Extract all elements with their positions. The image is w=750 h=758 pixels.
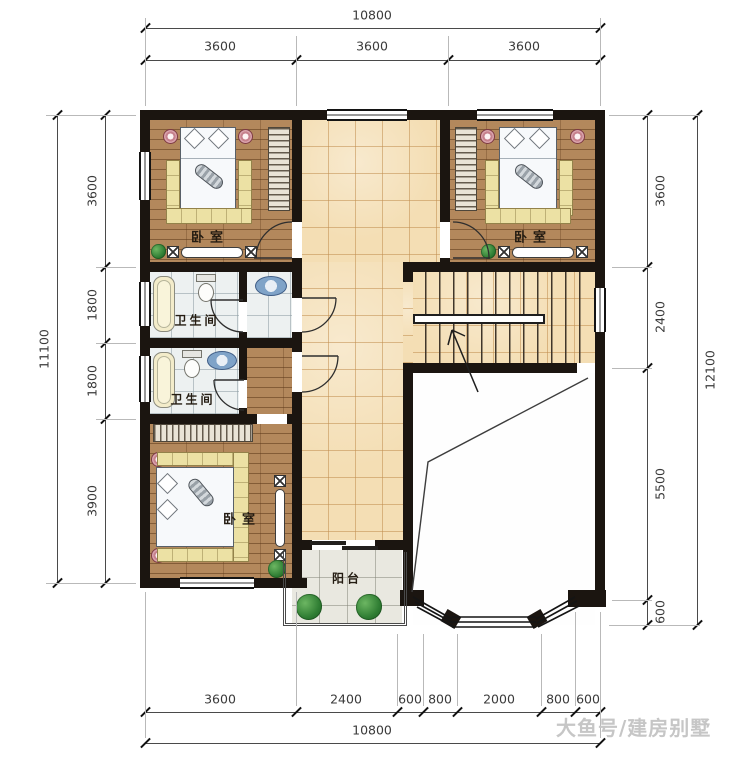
dimension-line bbox=[105, 115, 106, 583]
balcony-wall-stub bbox=[292, 540, 312, 550]
dimension-line bbox=[697, 115, 698, 625]
bath-partition bbox=[239, 332, 247, 338]
bathtub-basin bbox=[157, 356, 171, 404]
dim-label: 800 bbox=[428, 692, 452, 707]
sink bbox=[207, 351, 237, 370]
bath-partition bbox=[239, 348, 247, 380]
interior-wall bbox=[403, 262, 413, 282]
extension-line bbox=[96, 267, 136, 268]
dim-label: 12100 bbox=[703, 350, 718, 390]
dim-label: 11100 bbox=[37, 329, 52, 369]
hall-floor-lower bbox=[302, 262, 403, 540]
bed-sheet-line bbox=[181, 158, 235, 159]
bathtub-basin bbox=[157, 280, 171, 328]
blanket-roll-icon bbox=[192, 162, 225, 192]
dim-label: 600 bbox=[398, 692, 422, 707]
extension-line bbox=[612, 267, 652, 268]
interior-wall bbox=[140, 338, 302, 348]
cabinet-end bbox=[576, 246, 588, 258]
hall-stair-gap-floor bbox=[403, 282, 413, 365]
dim-label: 5500 bbox=[653, 468, 668, 500]
room-label-bathroom-lower: 卫生间 bbox=[170, 391, 215, 408]
extension-line bbox=[612, 368, 652, 369]
dim-label: 2400 bbox=[330, 692, 362, 707]
bed bbox=[499, 127, 557, 211]
bed-bench bbox=[157, 548, 237, 562]
hall-floor-upper bbox=[302, 120, 440, 262]
room-label-bedroom-bottom-left: 卧室 bbox=[223, 509, 261, 528]
extension-line bbox=[46, 583, 136, 584]
room-label-bathroom-upper: 卫生间 bbox=[174, 312, 219, 329]
sink bbox=[255, 276, 287, 296]
bath-partition bbox=[239, 272, 247, 302]
dim-label: 600 bbox=[653, 600, 668, 624]
window bbox=[139, 152, 151, 200]
balcony-wall-stub bbox=[375, 540, 403, 550]
cabinet-end bbox=[245, 246, 257, 258]
dim-label: 3600 bbox=[204, 692, 236, 707]
extension-line bbox=[600, 18, 601, 106]
bed-bench bbox=[233, 452, 249, 562]
extension-line bbox=[612, 600, 652, 601]
interior-wall bbox=[140, 262, 302, 272]
bed-bench bbox=[166, 208, 252, 224]
window bbox=[327, 109, 407, 121]
interior-wall bbox=[292, 120, 302, 222]
pillow-icon bbox=[184, 128, 205, 149]
floor-plan: 卧室 卧室 卧室 卫生间 卫生间 阳台 10800 3600 3600 3600… bbox=[0, 0, 750, 758]
extension-line bbox=[296, 592, 297, 706]
extension-line bbox=[145, 18, 146, 106]
toilet-tank bbox=[182, 350, 202, 358]
pillow-icon bbox=[504, 128, 525, 149]
dim-label: 3900 bbox=[85, 485, 100, 517]
pillow-icon bbox=[157, 473, 178, 494]
dimension-line bbox=[647, 115, 648, 625]
interior-wall bbox=[403, 262, 605, 272]
window bbox=[139, 356, 151, 402]
extension-line bbox=[96, 419, 136, 420]
room-label-bedroom-top-right: 卧室 bbox=[514, 227, 552, 246]
bed-sheet-line bbox=[500, 158, 556, 159]
dim-label: 600 bbox=[576, 692, 600, 707]
bath-partition bbox=[239, 408, 247, 414]
dresser bbox=[512, 247, 574, 258]
room-label-balcony: 阳台 bbox=[332, 570, 362, 587]
exterior-wall-right bbox=[595, 110, 605, 607]
extension-line bbox=[96, 343, 136, 344]
window bbox=[594, 288, 606, 332]
extension-line bbox=[296, 36, 297, 106]
extension-line bbox=[457, 634, 458, 706]
extension-line bbox=[46, 115, 136, 116]
extension-line bbox=[145, 592, 146, 738]
dim-label: 3600 bbox=[85, 175, 100, 207]
extension-line bbox=[448, 36, 449, 106]
interior-wall bbox=[140, 414, 257, 424]
dim-label: 3600 bbox=[508, 39, 540, 54]
toilet-bowl bbox=[198, 283, 214, 302]
watermark: 大鱼号/建房别墅 bbox=[556, 712, 711, 741]
dimension-line bbox=[145, 712, 600, 713]
dim-label: 2400 bbox=[653, 301, 668, 333]
interior-wall bbox=[287, 414, 302, 424]
sliding-door bbox=[310, 541, 346, 545]
window bbox=[180, 577, 254, 589]
extension-line bbox=[609, 625, 700, 626]
dim-label: 800 bbox=[546, 692, 570, 707]
cabinet-end bbox=[274, 475, 286, 487]
interior-wall bbox=[403, 363, 577, 373]
toilet-bowl bbox=[184, 359, 200, 378]
bed bbox=[180, 127, 236, 211]
void-room-floor bbox=[413, 373, 595, 625]
dim-label: 2000 bbox=[483, 692, 515, 707]
cabinet-end bbox=[498, 246, 510, 258]
toilet-tank bbox=[196, 274, 216, 282]
pillow-icon bbox=[529, 128, 550, 149]
bed-bench bbox=[485, 208, 571, 224]
window bbox=[139, 282, 151, 326]
wardrobe bbox=[153, 424, 253, 442]
extension-line bbox=[609, 115, 700, 116]
nightstand-lamp-icon bbox=[570, 129, 585, 144]
bed bbox=[156, 467, 234, 547]
bed-bench bbox=[157, 452, 237, 466]
extension-line bbox=[575, 612, 576, 706]
nightstand-lamp-icon bbox=[480, 129, 495, 144]
dim-label: 3600 bbox=[653, 175, 668, 207]
nightstand-lamp-icon bbox=[238, 129, 253, 144]
blanket-roll-icon bbox=[512, 162, 545, 192]
dim-label: 1800 bbox=[85, 365, 100, 397]
pillow-icon bbox=[208, 128, 229, 149]
stair-handrail bbox=[413, 314, 545, 324]
sliding-door bbox=[342, 546, 378, 550]
bay-window-post bbox=[568, 590, 606, 607]
extension-line bbox=[423, 634, 424, 706]
dim-label: 3600 bbox=[204, 39, 236, 54]
dim-label: 10800 bbox=[352, 8, 392, 23]
interior-wall bbox=[440, 120, 450, 222]
nightstand-lamp-icon bbox=[163, 129, 178, 144]
window bbox=[477, 109, 553, 121]
cabinet-end bbox=[167, 246, 179, 258]
dimension-line bbox=[145, 28, 600, 29]
room-label-bedroom-top-left: 卧室 bbox=[191, 227, 229, 246]
dimension-line bbox=[145, 60, 600, 61]
window-seat bbox=[275, 489, 285, 547]
vestibule-floor bbox=[247, 348, 292, 414]
dim-label: 10800 bbox=[352, 723, 392, 738]
dimension-line bbox=[145, 743, 600, 744]
bathtub bbox=[153, 276, 175, 332]
dim-label: 3600 bbox=[356, 39, 388, 54]
pillow-icon bbox=[157, 499, 178, 520]
wardrobe bbox=[268, 127, 290, 211]
blanket-roll-icon bbox=[186, 476, 217, 509]
dresser bbox=[181, 247, 243, 258]
extension-line bbox=[541, 634, 542, 706]
dim-label: 1800 bbox=[85, 289, 100, 321]
wardrobe bbox=[455, 127, 477, 211]
extension-line bbox=[397, 634, 398, 706]
dimension-line bbox=[57, 115, 58, 583]
